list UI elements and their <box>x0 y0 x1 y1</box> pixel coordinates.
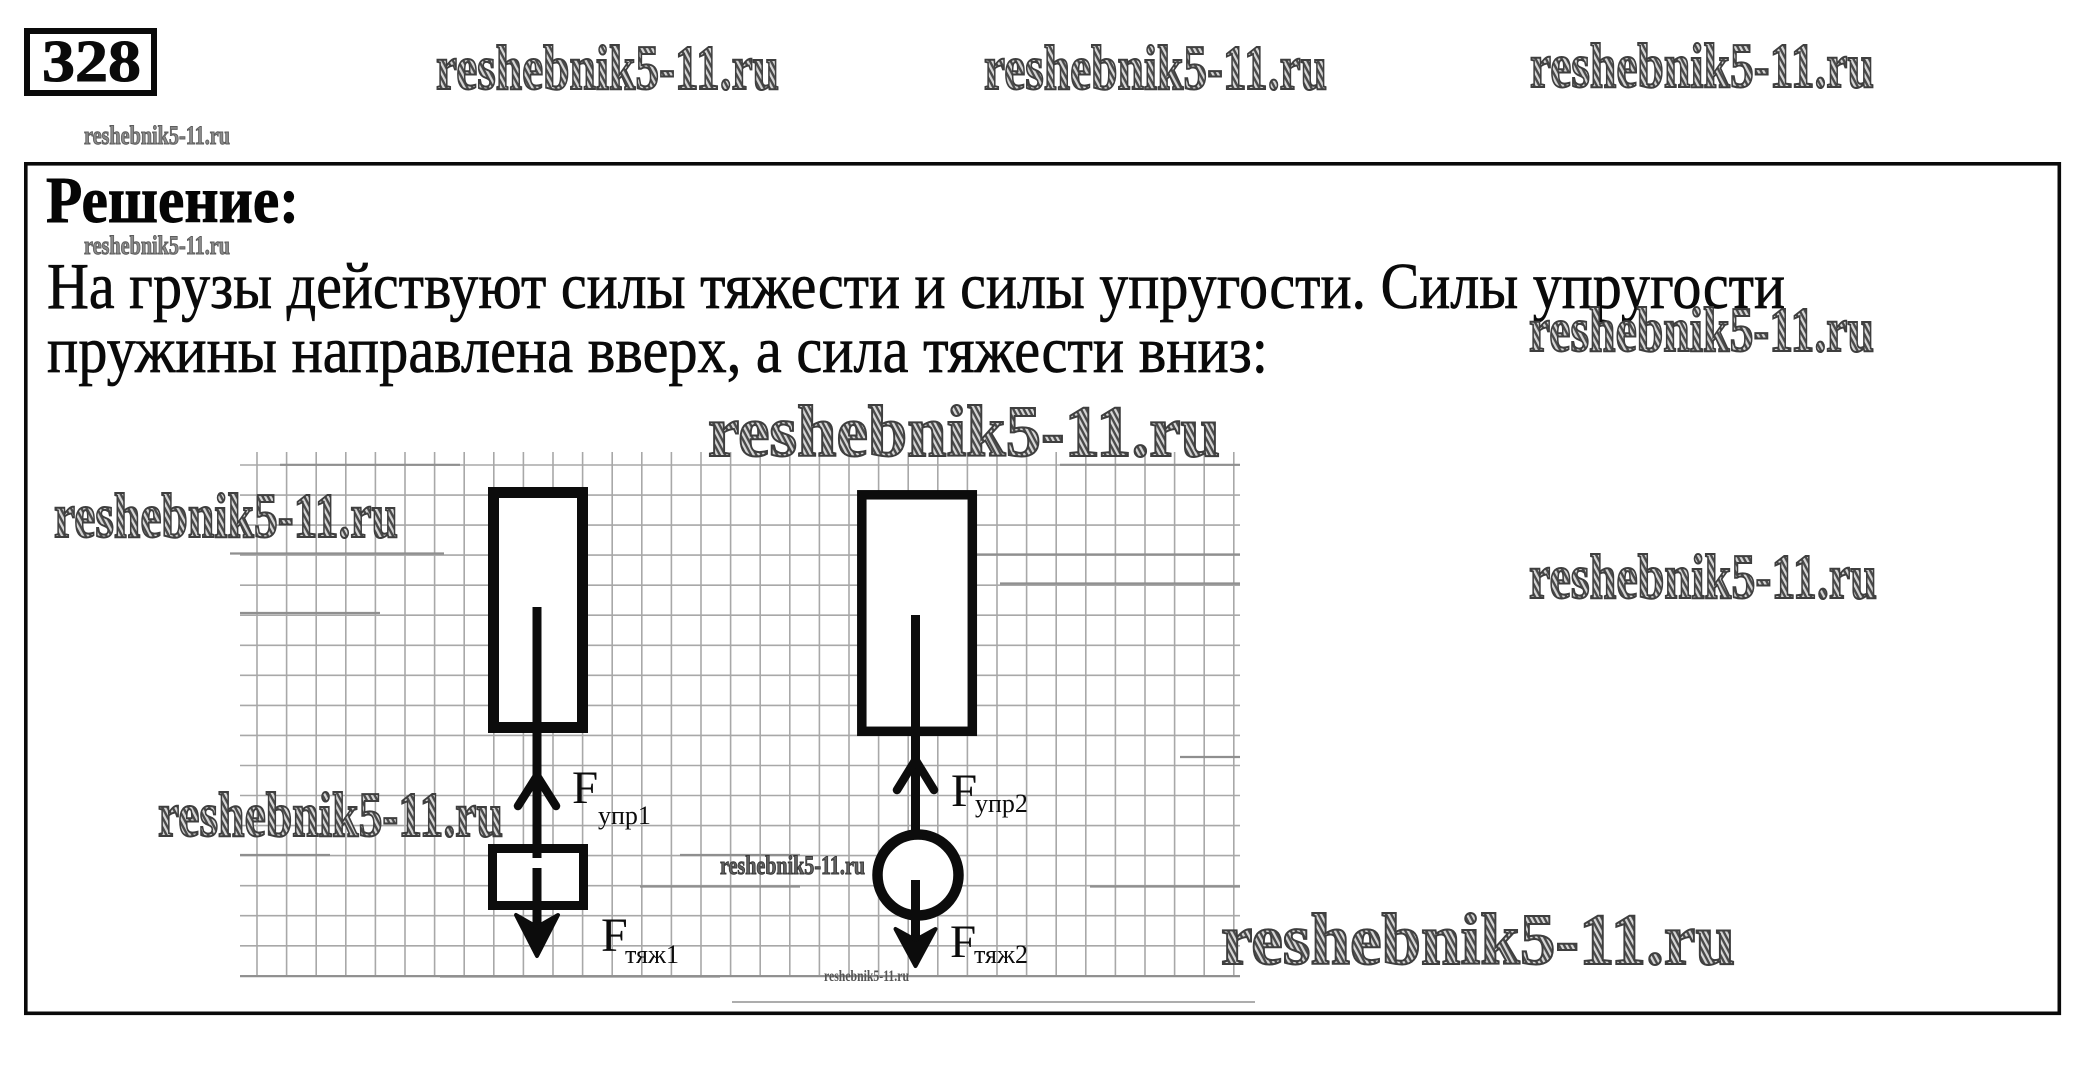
svg-text:Решение:: Решение: <box>46 164 299 237</box>
svg-text:F: F <box>572 762 598 814</box>
svg-text:reshebnik5-11.ru: reshebnik5-11.ru <box>984 33 1327 103</box>
svg-text:тяж2: тяж2 <box>974 940 1028 969</box>
svg-text:reshebnik5-11.ru: reshebnik5-11.ru <box>54 481 398 551</box>
svg-text:На грузы действуют силы тяжест: На грузы действуют силы тяжести и силы у… <box>47 250 1785 323</box>
svg-text:reshebnik5-11.ru: reshebnik5-11.ru <box>1529 295 1874 365</box>
svg-text:пружины направлена вверх, а си: пружины направлена вверх, а сила тяжести… <box>47 314 1268 387</box>
svg-text:reshebnik5-11.ru: reshebnik5-11.ru <box>158 780 503 850</box>
svg-text:reshebnik5-11.ru: reshebnik5-11.ru <box>824 968 909 985</box>
svg-text:reshebnik5-11.ru: reshebnik5-11.ru <box>84 121 230 150</box>
svg-text:F: F <box>601 909 628 962</box>
svg-text:reshebnik5-11.ru: reshebnik5-11.ru <box>1530 31 1874 101</box>
svg-text:reshebnik5-11.ru: reshebnik5-11.ru <box>708 391 1220 472</box>
svg-text:reshebnik5-11.ru: reshebnik5-11.ru <box>84 231 230 260</box>
svg-text:reshebnik5-11.ru: reshebnik5-11.ru <box>436 33 779 103</box>
svg-text:F: F <box>951 765 977 817</box>
svg-text:reshebnik5-11.ru: reshebnik5-11.ru <box>720 851 865 880</box>
svg-text:328: 328 <box>42 28 141 94</box>
svg-text:reshebnik5-11.ru: reshebnik5-11.ru <box>1529 542 1877 612</box>
svg-text:тяж1: тяж1 <box>625 940 679 969</box>
svg-text:reshebnik5-11.ru: reshebnik5-11.ru <box>1221 899 1735 980</box>
svg-text:упр2: упр2 <box>975 789 1028 818</box>
svg-text:упр1: упр1 <box>598 801 651 830</box>
svg-text:F: F <box>950 916 976 968</box>
